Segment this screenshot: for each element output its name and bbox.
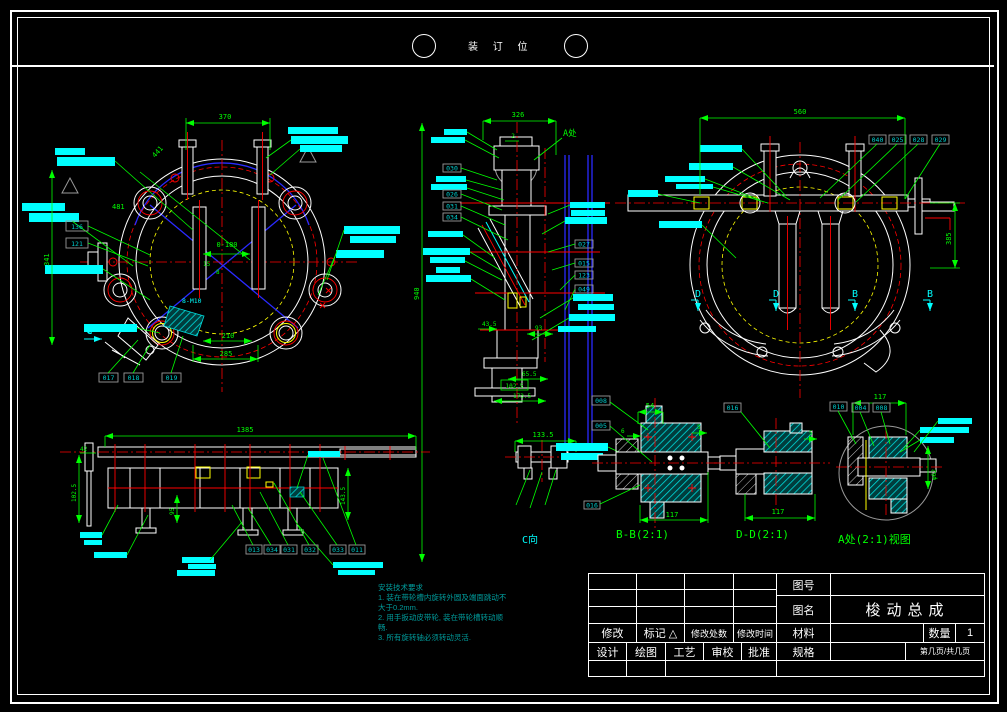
a-detail-view: 117 φ62 010 004 008 A处(2:1)视图 <box>830 393 972 546</box>
material-label: 材料 <box>776 623 831 643</box>
dim-560: 560 <box>794 108 807 116</box>
drawing-no-value <box>830 573 985 596</box>
revision-cell <box>684 589 734 607</box>
balloon-008-a: 008 <box>876 404 888 412</box>
detail-a-label: A处 <box>563 128 577 139</box>
dim-2: 2 <box>511 133 515 140</box>
spec-value <box>830 642 906 661</box>
material-value <box>830 623 924 643</box>
dim-42: 42 <box>80 446 88 453</box>
drawing-name-label: 图名 <box>776 595 831 624</box>
front-view-geometry <box>62 132 360 392</box>
revision-cell <box>733 606 777 624</box>
draft-label: 绘图 <box>626 642 666 661</box>
side-view: 326 2 A处 940 43.5 93 65.5 102.5 173.5 <box>413 111 615 562</box>
balloon-031b: 031 <box>283 546 295 554</box>
dd-view-label: D-D(2:1) <box>736 528 789 541</box>
dim-5: 5 <box>697 424 701 431</box>
dim-133-5: 133.5 <box>532 431 553 439</box>
rev-count-label: 修改处数 <box>684 623 734 643</box>
check-label: 审校 <box>703 642 742 661</box>
balloon-016-bb: 016 <box>586 502 598 510</box>
drawing-name-value: 梭动总成 <box>830 595 985 624</box>
mark-text: 标记 <box>644 625 666 641</box>
dim-173-5: 173.5 <box>513 393 531 400</box>
balloon-008: 008 <box>595 397 607 405</box>
dim-6: 6 <box>621 428 625 435</box>
balloon-027: 027 <box>578 241 590 249</box>
bb-view-label: B-B(2:1) <box>616 528 669 541</box>
dim-117-dd: 117 <box>772 508 785 516</box>
dim-385: 385 <box>945 232 953 245</box>
title-block-bottom-cell <box>776 660 985 677</box>
revision-cell <box>588 573 637 590</box>
dim-326: 326 <box>512 111 525 119</box>
dim-117-bb: 117 <box>666 511 679 519</box>
revision-cell <box>588 589 637 607</box>
balloon-034b: 034 <box>266 546 278 554</box>
dim-117-a: 117 <box>874 393 887 401</box>
dd-view-balloons: 016 <box>724 403 770 448</box>
dim-0-180: 0-180 <box>216 241 237 249</box>
bottom-view-geometry <box>60 443 430 535</box>
notes-line: 2. 用手扳动皮带轮, 装在带轮槽转动顺 <box>378 613 518 623</box>
balloon-026: 026 <box>446 191 458 199</box>
dim-54: 54 <box>646 402 654 410</box>
dim-481: 481 <box>112 203 125 211</box>
dim-93: 93 <box>535 325 543 332</box>
dim-43-5: 43.5 <box>482 321 497 328</box>
quantity-label: 数量 <box>923 623 956 643</box>
section-mark-d1: D <box>695 289 701 300</box>
balloon-019: 019 <box>166 374 178 382</box>
balloon-018: 018 <box>128 374 140 382</box>
balloon-025: 025 <box>892 136 904 144</box>
balloon-049: 049 <box>578 286 590 294</box>
balloon-136: 136 <box>71 223 83 231</box>
dim-15: 15 <box>203 261 211 268</box>
balloon-123: 123 <box>578 272 590 280</box>
approve-label: 批准 <box>741 642 777 661</box>
drawing-no-label: 图号 <box>776 573 831 596</box>
balloon-010: 010 <box>833 403 845 411</box>
front-view: 370 441 481 341 0-180 15 8 210 285 8-M10… <box>22 113 400 392</box>
triangle-mark: △ <box>669 627 677 640</box>
balloon-011: 011 <box>351 546 363 554</box>
revision-cell <box>636 589 685 607</box>
cad-drawing-canvas: 装 订 位 <box>0 0 1007 712</box>
dim-102-5b: 102.5 <box>71 484 78 502</box>
thread-note: 8-M10 <box>182 297 202 305</box>
signature-cell <box>665 660 777 677</box>
section-mark-d2: D <box>773 289 779 300</box>
rear-view-geometry <box>615 136 965 398</box>
balloon-004: 004 <box>855 404 867 412</box>
revision-cell <box>636 606 685 624</box>
notes-line: 大于0.2mm. <box>378 603 518 613</box>
signature-cell <box>626 660 666 677</box>
dim-210: 210 <box>222 332 235 340</box>
balloon-015: 015 <box>578 260 590 268</box>
dim-65-5: 65.5 <box>522 371 537 378</box>
balloon-030: 030 <box>446 165 458 173</box>
c-view-label: C向 <box>522 533 538 546</box>
notes-title: 安装技术要求 <box>378 583 518 593</box>
balloon-033: 033 <box>332 546 344 554</box>
dim-441: 441 <box>151 145 165 160</box>
dim-1385: 1385 <box>237 426 254 434</box>
rear-view-section-marks: D D B B <box>691 289 933 311</box>
quantity-value: 1 <box>955 623 985 643</box>
dim-285: 285 <box>220 350 233 358</box>
section-mark-b2: B <box>927 289 933 300</box>
dd-view: 5 117 016 D-D(2:1) <box>714 403 830 541</box>
revision-cell <box>733 573 777 590</box>
revision-cell <box>684 606 734 624</box>
rear-view: D D B B 560 385 040 <box>615 108 965 398</box>
balloon-016-dd: 016 <box>727 404 739 412</box>
revision-cell <box>684 573 734 590</box>
notes-line: 畅. <box>378 623 518 633</box>
revision-cell <box>636 573 685 590</box>
rear-view-balloons: 040 025 028 029 <box>820 135 949 202</box>
rev-date-label: 修改时间 <box>733 623 777 643</box>
bb-view: 54 6 5 117 008 005 016 B-B(2:1) <box>556 396 728 541</box>
dim-143-5: 143.5 <box>340 487 347 505</box>
dim-370: 370 <box>219 113 232 121</box>
dim-5-dd: 5 <box>809 430 813 437</box>
dim-341: 341 <box>43 253 51 266</box>
balloon-032: 032 <box>304 546 316 554</box>
title-block: 修改 标记 △ 修改处数 修改时间 设计 绘图 工艺 审校 批准 图号 图名 梭… <box>588 573 985 677</box>
balloon-017: 017 <box>103 374 115 382</box>
a-detail-highlight-bars <box>920 418 972 443</box>
process-label: 工艺 <box>665 642 704 661</box>
notes-line: 1. 装在带轮槽内旋转外圆及端面跳动不 <box>378 593 518 603</box>
dim-940: 940 <box>413 287 421 300</box>
balloon-031: 031 <box>446 203 458 211</box>
balloon-121: 121 <box>71 240 83 248</box>
signature-cell <box>588 660 627 677</box>
bottom-view: 1385 42 102.5 95 143.5 013 034 031 <box>60 426 430 576</box>
balloon-028: 028 <box>913 136 925 144</box>
revision-label: 修改 <box>588 623 637 643</box>
mark-label: 标记 △ <box>636 623 685 643</box>
design-label: 设计 <box>588 642 627 661</box>
balloon-034: 034 <box>446 214 458 222</box>
page-label: 第几页/共几页 <box>905 642 985 661</box>
balloon-013: 013 <box>248 546 260 554</box>
dim-8: 8 <box>216 269 220 276</box>
notes-line: 3. 所有旋转轴必须转动灵活. <box>378 633 518 643</box>
balloon-040: 040 <box>872 136 884 144</box>
view-direction-c: C <box>86 324 93 337</box>
dim-102-5: 102.5 <box>505 383 523 390</box>
revision-cell <box>733 589 777 607</box>
installation-notes: 安装技术要求 1. 装在带轮槽内旋转外圆及端面跳动不 大于0.2mm. 2. 用… <box>378 583 518 643</box>
revision-cell <box>588 606 637 624</box>
spec-label: 规格 <box>776 642 831 661</box>
balloon-005: 005 <box>595 422 607 430</box>
a-detail-label: A处(2:1)视图 <box>838 532 911 546</box>
dim-95: 95 <box>169 507 176 515</box>
dim-phi62: φ62 <box>931 469 938 480</box>
section-mark-b1: B <box>852 289 858 300</box>
balloon-029: 029 <box>935 136 947 144</box>
